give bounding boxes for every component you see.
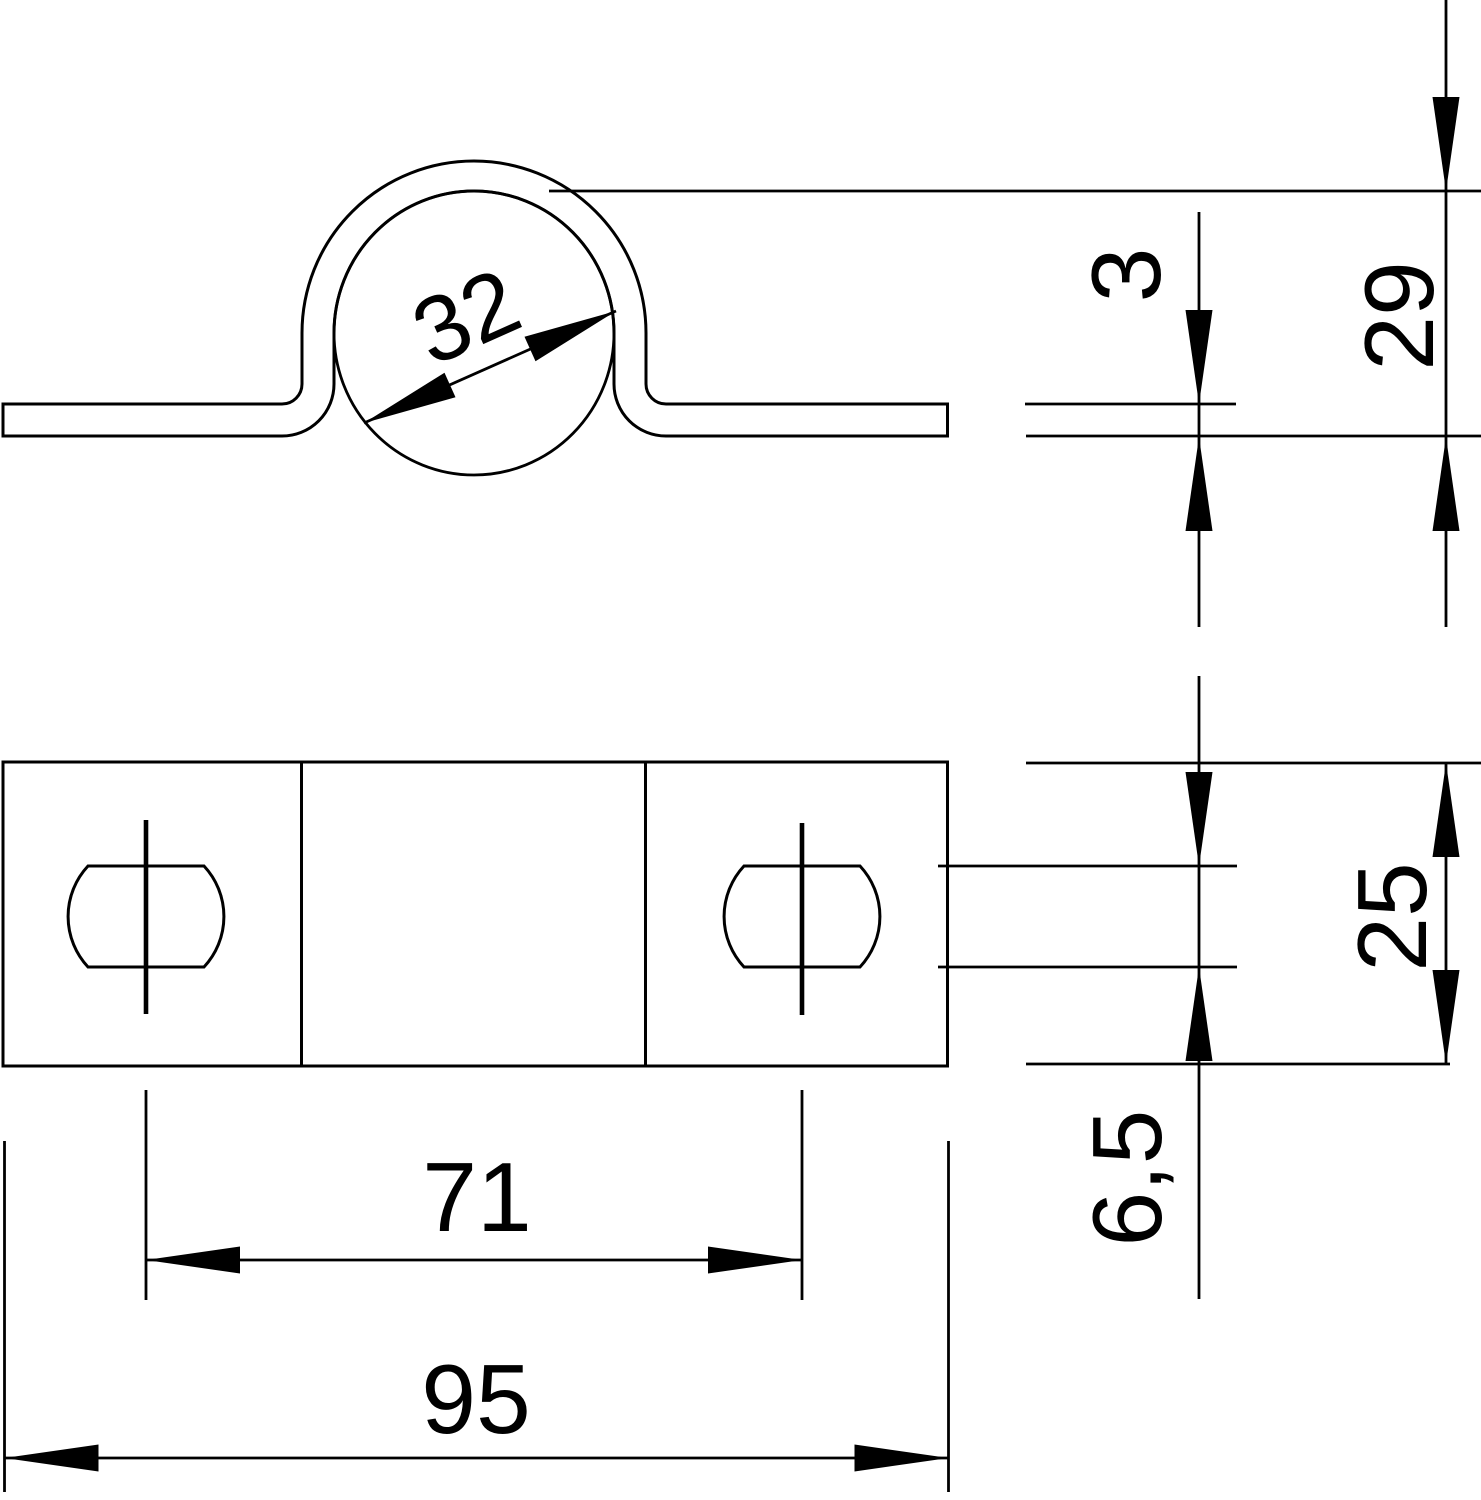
svg-text:71: 71 bbox=[422, 1142, 532, 1252]
svg-text:29: 29 bbox=[1344, 261, 1454, 371]
svg-text:6,5: 6,5 bbox=[1072, 1110, 1182, 1247]
svg-text:25: 25 bbox=[1337, 862, 1447, 972]
svg-text:3: 3 bbox=[1071, 248, 1181, 303]
svg-text:95: 95 bbox=[421, 1344, 531, 1454]
